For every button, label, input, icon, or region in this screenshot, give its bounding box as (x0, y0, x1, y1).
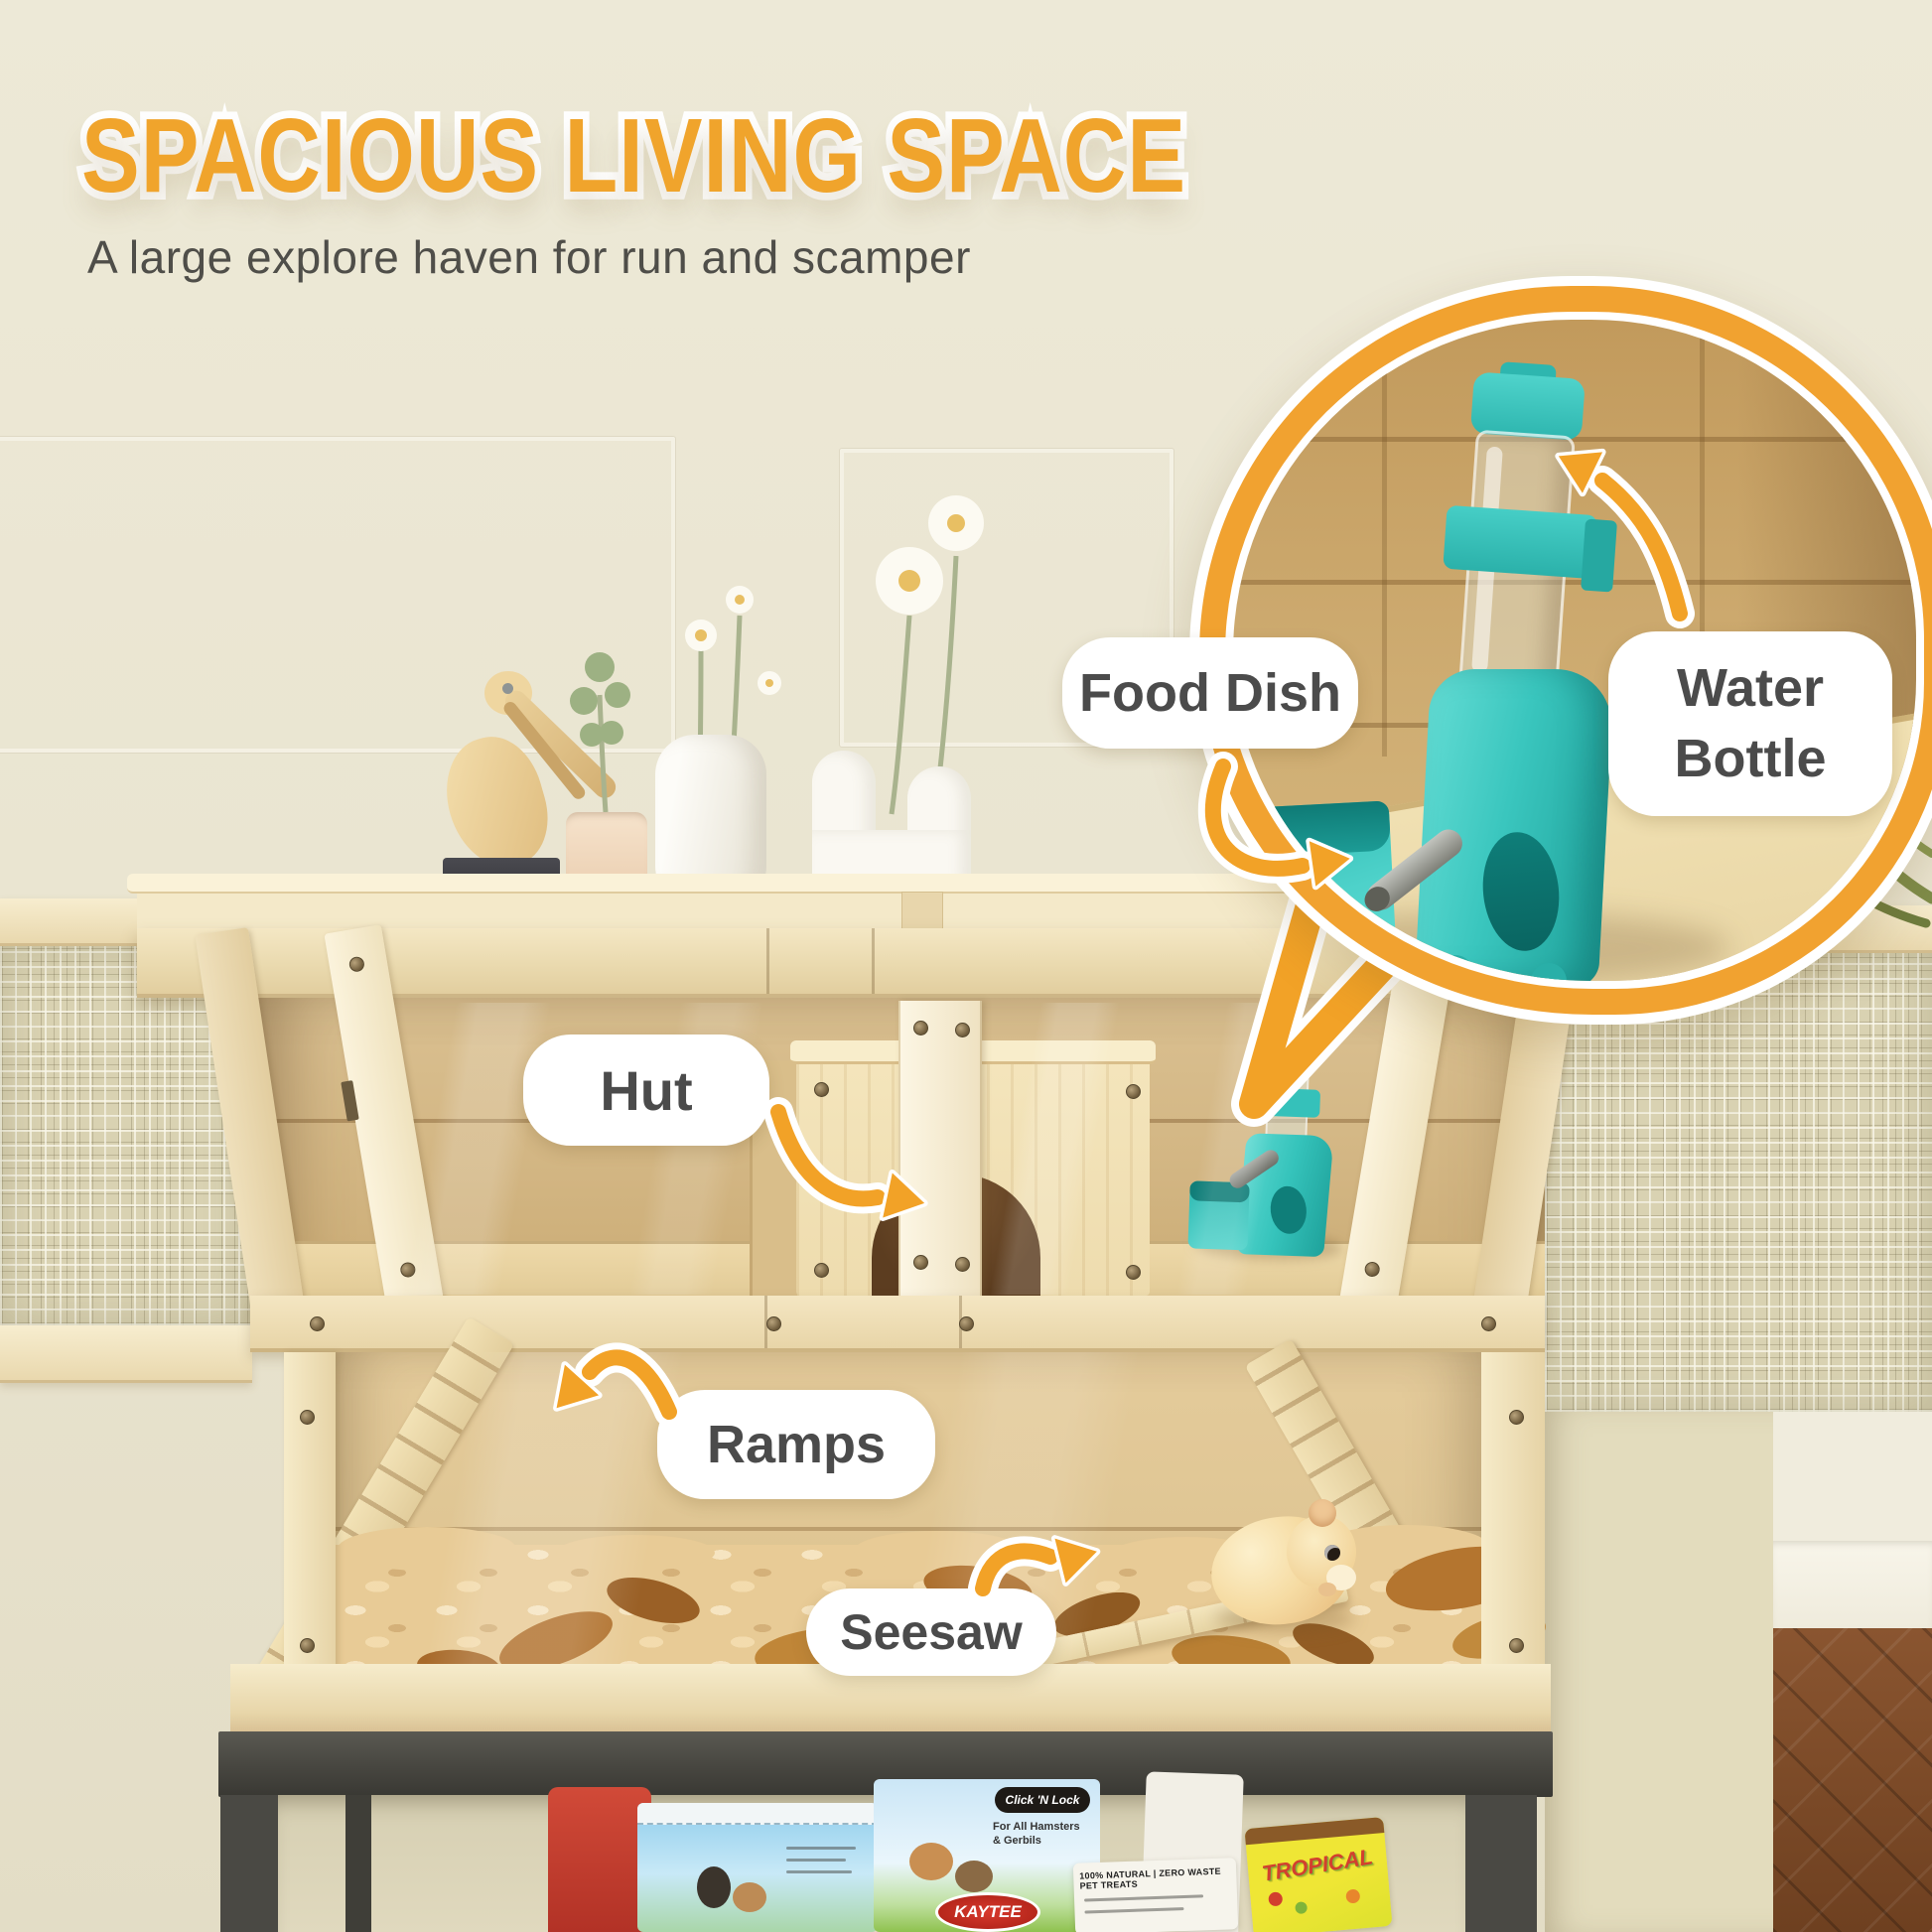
bag-subtitle: For All Hamsters & Gerbils (993, 1821, 1092, 1835)
left-run-bottom-rail (0, 1325, 252, 1383)
wood-joint (766, 928, 769, 994)
food-dish-opening (1248, 800, 1391, 857)
baseboard (1773, 1541, 1932, 1632)
screw (310, 1316, 325, 1331)
kaytee-food-bag: Click 'N Lock For All Hamsters & Gerbils… (874, 1779, 1100, 1932)
ramps-label: Ramps (657, 1390, 935, 1499)
screw (348, 956, 365, 973)
wooden-bird-eye (502, 683, 513, 694)
stand-leg (345, 1795, 371, 1932)
bag-hamster-photo (909, 1843, 953, 1880)
click-n-lock-badge: Click 'N Lock (995, 1787, 1090, 1813)
cage-top-joint (901, 892, 943, 929)
plank-seam (1382, 320, 1387, 757)
tropical-logo: TROPICAL (1247, 1842, 1388, 1889)
kaytee-logo: KAYTEE (935, 1892, 1040, 1932)
screw (1481, 1316, 1496, 1331)
screw (959, 1316, 974, 1331)
screw (1509, 1638, 1524, 1653)
hut-label: Hut (523, 1035, 769, 1146)
strap-clip (1581, 519, 1617, 593)
screw (913, 1021, 928, 1035)
screw (300, 1410, 315, 1425)
bag-seal-strip (637, 1803, 878, 1825)
seesaw-label: Seesaw (806, 1588, 1056, 1676)
treat-bag: 100% NATURAL | ZERO WASTE PET TREATS (1073, 1858, 1238, 1932)
screw (1509, 1410, 1524, 1425)
pet-food-bag-red (548, 1787, 651, 1932)
screw (913, 1255, 928, 1270)
middle-front-rail (250, 1296, 1545, 1352)
pet-food-bag-blue (637, 1803, 878, 1932)
screw (766, 1316, 781, 1331)
page-subtitle: A large explore haven for run and scampe… (87, 230, 971, 284)
acrylic-door-right (985, 1003, 1400, 1295)
screw (955, 1257, 970, 1272)
treat-bag-text: 100% NATURAL | ZERO WASTE PET TREATS (1079, 1865, 1231, 1890)
lower-left-post (284, 1352, 336, 1676)
parquet-floor (1773, 1628, 1932, 1932)
water-bottle (1444, 359, 1597, 705)
front-divider-plank (898, 1001, 982, 1296)
bag-hamster-photo (955, 1861, 993, 1892)
stand-leg (1465, 1795, 1537, 1932)
tropical-treat-bag: TROPICAL (1244, 1817, 1392, 1932)
food-dish-label: Food Dish (1062, 637, 1358, 749)
stand-leg (220, 1795, 278, 1932)
bottle-strap (1443, 505, 1597, 579)
screw (300, 1638, 315, 1653)
doorway-wall (1773, 1410, 1932, 1551)
bag-hamster-photo (733, 1882, 766, 1912)
water-bottle-label: Water Bottle (1608, 631, 1892, 816)
bag-hamster-photo (697, 1866, 731, 1908)
wall-picture-frame (0, 437, 675, 753)
lower-right-post (1481, 1352, 1545, 1676)
screw (955, 1023, 970, 1037)
page-title: SPACIOUS LIVING SPACE (81, 95, 1186, 216)
product-infographic: Click 'N Lock For All Hamsters & Gerbils… (0, 0, 1932, 1932)
wood-joint (872, 928, 875, 994)
